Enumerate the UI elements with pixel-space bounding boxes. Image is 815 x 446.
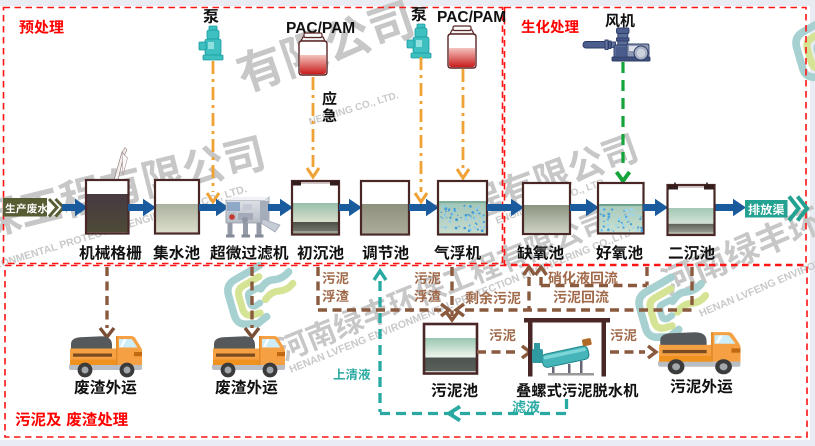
svg-text:PAC/PAM: PAC/PAM xyxy=(437,9,506,26)
